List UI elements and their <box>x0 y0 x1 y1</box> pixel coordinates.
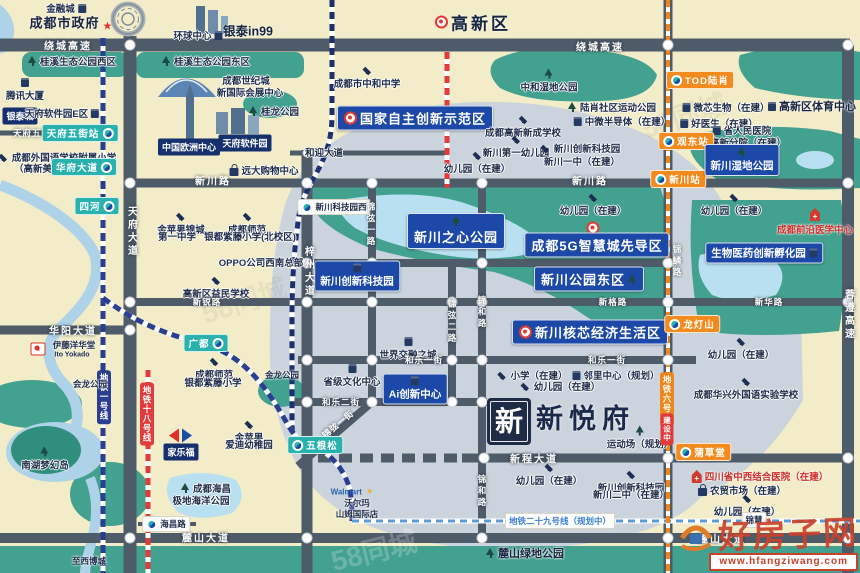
bld-icon <box>680 119 688 128</box>
school-icon <box>210 276 221 285</box>
label-text: 腾讯大厦 <box>6 88 44 102</box>
label-text: 高新区体育中心 <box>779 98 856 114</box>
map-label: 麓山绿地公园 <box>486 545 564 561</box>
metro-station-badge: 蒲草堂 <box>675 443 731 461</box>
map-label: 会龙公园 <box>73 378 107 390</box>
label-text: 四川省中西结合医院（在建） <box>705 469 829 483</box>
star-icon <box>103 16 115 28</box>
label-text: 山姆国际店 <box>336 508 379 520</box>
carrefour-icon <box>169 429 193 444</box>
label-text: 华府大道 <box>56 160 98 174</box>
map-label: 幼儿园（在建） <box>708 337 775 361</box>
school-icon <box>520 382 531 391</box>
label-text: 新川创新科技园 <box>320 274 394 289</box>
label-text: 锦弦一路 <box>365 202 377 248</box>
label-text: 天府软件园E区 <box>25 106 88 120</box>
map-label: 银泰in99 <box>223 21 273 40</box>
label-text: 桂溪生态公园西区 <box>40 54 116 68</box>
label-text: 天府大道 <box>124 206 139 258</box>
label-text: 家乐福 <box>167 446 194 459</box>
label-text: 和乐二街 <box>322 396 360 408</box>
school-icon <box>510 135 521 144</box>
label-text: 地铁二十九号线（规划中） <box>509 515 611 527</box>
metro-line-label: 地铁二十九号线（规划中） <box>505 513 615 529</box>
label-text: OPPO公司西南总部 <box>219 255 303 269</box>
label-text: 远大购物中心 <box>241 163 298 177</box>
map-label: 新川一中（在建） <box>544 154 620 168</box>
tree-icon <box>181 483 190 493</box>
label-text: 绕城高速 <box>44 38 92 53</box>
label-text: 海昌路 <box>160 518 186 530</box>
label-text: 新格路 <box>599 296 628 308</box>
label-text: 天府软件园 <box>222 137 267 150</box>
school-icon <box>540 144 551 153</box>
label-text: 幼儿园（在建） <box>708 347 775 361</box>
site-watermark-text: 好房子网 <box>717 515 858 553</box>
label-text: 锦和路 <box>476 296 488 331</box>
metro-logo-icon <box>663 136 674 147</box>
metro-logo-icon <box>292 440 303 451</box>
metro-station-badge: 龙灯山 <box>664 315 720 333</box>
map-label: 四川省中西结合医院（在建） <box>692 469 829 483</box>
label-text: 国家自主创新示范区 <box>360 109 486 128</box>
label-text: 中微半导体（在建） <box>585 114 671 128</box>
city-government-label: 成都市政府 <box>29 13 114 32</box>
map-label: 高新区体育中心 <box>768 98 856 114</box>
label-text: 省级文化中心 <box>323 374 380 388</box>
map-label: 远大购物中心 <box>229 163 298 177</box>
school-icon <box>741 494 752 503</box>
label-text: TOD陆肖 <box>685 73 729 87</box>
label-text: 蒲草堂 <box>694 445 726 459</box>
park-badge: 新川湿地公园 <box>705 144 780 176</box>
map-label <box>31 343 46 356</box>
label-text: 幼儿园（在建） <box>560 203 627 217</box>
school-icon <box>208 357 219 366</box>
tree-icon <box>738 147 747 157</box>
metro-logo-icon <box>680 447 691 458</box>
map-label: 极地海洋公园 <box>172 493 229 507</box>
label-text: 环球中心 <box>173 28 211 42</box>
tree-icon <box>28 56 37 66</box>
map-label: 银都紫藤小学(北校区) <box>204 229 296 243</box>
label-text: 天府五街站 <box>47 126 100 140</box>
label-text: Ai创新中心 <box>389 387 442 402</box>
map-label: 中国欧洲中心 <box>158 139 220 156</box>
label-text: 新川核芯经济生活区 <box>535 323 661 342</box>
site-watermark-house-icon <box>676 516 716 552</box>
school-icon <box>0 153 9 162</box>
map-label: 中微半导体（在建） <box>574 114 671 128</box>
road-label: 新川路 <box>572 173 608 188</box>
map-label: 幼儿园（在建） <box>520 379 601 393</box>
label-text: 成都市政府 <box>29 13 99 32</box>
label-text: 伊藤洋华堂 <box>53 339 96 351</box>
map-label: 南湖梦幻岛 <box>21 447 69 472</box>
school-icon <box>728 193 739 202</box>
school-icon <box>740 377 751 386</box>
metro-station-badge: 广都 <box>183 334 228 352</box>
label-text: 中国欧洲中心 <box>162 141 216 154</box>
project-logo: 新 <box>487 398 531 445</box>
road-label: 和乐二街 <box>322 396 360 408</box>
label-text: 新川一中（在建） <box>544 154 620 168</box>
metro-station-badge: 四河 <box>74 197 119 215</box>
bld-icon <box>713 126 721 135</box>
map-label: 中和湿地公园 <box>520 69 577 94</box>
label-text: 新锐路 <box>193 296 222 308</box>
school-icon <box>587 193 598 202</box>
road-label: 华阳大道 <box>49 323 97 338</box>
label-text: 锦鳞路 <box>671 245 683 280</box>
park-badge: 新川公园东区 <box>534 267 644 292</box>
map-label: 天府软件园 <box>218 135 271 152</box>
bld-icon <box>574 117 582 126</box>
map-label: 和迎大道 <box>305 145 343 159</box>
label-text: 新川湿地公园 <box>711 158 774 173</box>
zone-badge: 新川创新科技园 <box>314 261 400 292</box>
label-text: 新华路 <box>755 296 784 308</box>
bld-icon <box>768 102 776 111</box>
tree-icon <box>544 69 553 79</box>
tree-icon <box>635 426 644 436</box>
zone-badge: 生物医药创新孵化园 <box>705 243 823 264</box>
zone-badge: 新川核芯经济生活区 <box>512 320 668 345</box>
label-text: 华阳大道 <box>49 323 97 338</box>
label-text: 新川路 <box>572 173 608 188</box>
school-icon <box>496 371 507 380</box>
road-label: 蓉遵高速 <box>841 289 856 341</box>
metro-logo-icon <box>301 202 312 213</box>
map-label: 微芯生物（在建） <box>682 100 769 114</box>
school-icon <box>243 420 254 429</box>
map-label: 伊藤洋华堂 <box>53 339 96 351</box>
map-label: 成都市中和中学 <box>334 66 401 90</box>
road-label: 绕城高速 <box>576 39 624 54</box>
label-text: 龙灯山 <box>683 317 715 331</box>
label-text: 幼儿园（在建） <box>444 161 511 175</box>
road-label: 新格路 <box>599 296 628 308</box>
district-title: 高新区 <box>435 10 511 35</box>
road-label: 天府大道 <box>124 206 139 258</box>
map-label: 爱迪幼稚园 <box>225 437 273 451</box>
label-text: 成都华兴外国语实验学校 <box>694 387 799 401</box>
bld-icon <box>353 264 361 273</box>
label-text: 银都紫藤小学(北校区) <box>204 229 296 243</box>
metro-station-badge: 华府大道 <box>51 158 117 176</box>
label-text: 陆肖社区运动公园 <box>580 100 656 114</box>
map-label: 幼儿园（在建） <box>560 193 627 217</box>
label-text: 成都前沿医学中心 <box>777 222 853 236</box>
label-text: 极地海洋公园 <box>172 493 229 507</box>
project-name: 新悦府 <box>536 405 635 435</box>
bld-icon <box>411 377 419 386</box>
school-icon <box>543 463 554 472</box>
label-text: 新国际会展中心 <box>217 85 284 99</box>
road-label: 锦和路 <box>476 296 488 331</box>
target-icon <box>435 16 448 29</box>
metro-logo-icon <box>655 174 666 185</box>
school-icon <box>471 151 482 160</box>
interchange-icon <box>113 4 143 34</box>
label-text: 锦弦二路 <box>446 299 458 345</box>
tree-icon <box>628 274 637 284</box>
bld-icon <box>78 4 86 13</box>
label-text: 梓州大道 <box>301 246 316 298</box>
label-text: 锦和路 <box>476 475 488 510</box>
school-icon <box>517 115 528 124</box>
metro-station-badge: 天府五街站 <box>42 124 119 142</box>
target-icon <box>344 112 357 125</box>
label-text: 银都紫藤小学 <box>184 375 241 389</box>
tree-icon <box>162 56 171 66</box>
label-text: 四河 <box>79 199 100 213</box>
tree-icon <box>486 548 495 558</box>
label-text: 五根松 <box>306 438 338 452</box>
bld-icon <box>404 337 412 346</box>
map-label: 金龙公园 <box>265 369 299 381</box>
bld-icon <box>215 31 223 40</box>
label-text: 新川二中（在建） <box>593 487 669 501</box>
metro-station-badge: 新川科技园西 <box>297 199 370 215</box>
road-label: 和乐一街 <box>588 354 626 366</box>
road-label: 新华路 <box>755 296 784 308</box>
road-label: 锦弦一路 <box>365 202 377 248</box>
label-text: 桂龙公园 <box>261 104 299 118</box>
school-icon <box>175 212 186 221</box>
label-text: 南湖梦幻岛 <box>21 458 69 472</box>
label-text: 中和湿地公园 <box>520 80 577 94</box>
label-text: Ito Yokado <box>54 352 89 359</box>
road-label: 新锐路 <box>193 296 222 308</box>
label-text: 和乐一街 <box>405 354 443 366</box>
park-badge: 新川之心公园 <box>407 213 505 249</box>
road-label: 绕城高速 <box>44 38 92 53</box>
metro-station-badge: 新川站 <box>650 170 706 188</box>
metro-logo-icon <box>669 319 680 330</box>
school-icon <box>361 66 372 75</box>
label-text: 麓山绿地公园 <box>498 545 564 561</box>
label-text: 成都5G智慧城先导区 <box>531 236 662 255</box>
road-label: 梓州大道 <box>301 246 316 298</box>
project-emblem: 新 <box>495 408 523 436</box>
label-text: 幼儿园（在建） <box>701 203 768 217</box>
label-text: 新川之心公园 <box>414 227 498 246</box>
label-text: 爱迪幼稚园 <box>225 437 273 451</box>
map-label: 成都前沿医学中心 <box>777 208 853 236</box>
carrefour-label: 家乐福 <box>163 444 198 461</box>
bld-icon <box>21 78 29 87</box>
label-text: 新川路 <box>195 173 231 188</box>
label-text: 会龙公园 <box>73 378 107 390</box>
map-label: 天府软件园E区 <box>25 106 99 120</box>
location-map: 新 新悦府 金融城成都市政府环球中心银泰in99绕城高速绕城高速桂溪生态公园西区… <box>0 0 860 573</box>
label-text: 新川站 <box>669 172 701 186</box>
metro-line-label: 地铁十八号线 <box>140 383 154 446</box>
hosp-icon <box>810 213 820 221</box>
label-text: 地铁十八号线 <box>141 386 153 443</box>
map-label <box>169 429 193 444</box>
bld-icon <box>91 109 99 118</box>
label-text: 桂溪生态公园东区 <box>174 54 250 68</box>
label-text: 幼儿园（在建） <box>516 473 583 487</box>
map-label: 陆肖社区运动公园 <box>568 100 656 114</box>
tree-icon <box>40 447 49 457</box>
metro-logo-icon <box>102 128 113 139</box>
map-label: 新川创新科技园 <box>540 141 621 155</box>
metro-logo-icon <box>671 75 682 86</box>
walmart-logo: Walmart <box>331 487 374 498</box>
label-text: 和乐一街 <box>588 354 626 366</box>
map-label: 幼儿园（在建） <box>516 463 583 487</box>
label-text: 高新区 <box>451 10 511 35</box>
label-text: 广都 <box>188 336 209 350</box>
metro-station-badge: TOD陆肖 <box>666 71 734 89</box>
tree-icon <box>249 106 258 116</box>
label-text: Walmart <box>331 488 362 497</box>
map-label: 新川二中（在建） <box>593 487 669 501</box>
school-icon <box>625 470 636 479</box>
road-label: 和乐一街 <box>405 354 443 366</box>
map-label: 新国际会展中心 <box>217 85 284 99</box>
label-text: 第一中学 <box>158 229 196 243</box>
tree-icon <box>451 216 460 226</box>
tree-icon <box>568 102 577 112</box>
shop-icon <box>698 488 707 496</box>
hosp-icon <box>692 475 702 483</box>
map-label: 桂溪生态公园东区 <box>162 54 250 68</box>
map-label: 幼儿园（在建） <box>701 193 768 217</box>
road-label: 锦鳞路 <box>671 245 683 280</box>
metro-station-badge: 五根松 <box>287 436 343 454</box>
zone-badge: Ai创新中心 <box>383 374 448 405</box>
label-text: 建设中 <box>662 416 673 442</box>
label-text: 新川公园东区 <box>541 270 625 289</box>
map-label: 银都紫藤小学 <box>184 375 241 389</box>
metro-logo-icon <box>101 162 112 173</box>
label-text: 成都市中和中学 <box>334 76 401 90</box>
map-label: 腾讯大厦 <box>6 78 44 102</box>
target-icon <box>519 326 532 339</box>
zone-badge: 成都5G智慧城先导区 <box>524 233 669 258</box>
map-label: 桂龙公园 <box>249 104 299 118</box>
label-text: 银泰in99 <box>223 21 273 40</box>
map-label: 环球中心 <box>173 28 222 42</box>
zone-badge: 国家自主创新示范区 <box>337 106 493 131</box>
map-label: 省级文化中心 <box>323 364 380 388</box>
map-label: 成都华兴外国语实验学校 <box>694 377 799 401</box>
bld-icon <box>682 103 690 112</box>
road-label: 新川路 <box>195 173 231 188</box>
road-label: 锦和路 <box>476 475 488 510</box>
label-text: 新川科技园西 <box>315 201 366 213</box>
map-label: 桂溪生态公园西区 <box>28 54 116 68</box>
ito-icon <box>31 343 46 356</box>
label-text: 金龙公园 <box>265 369 299 381</box>
metro-logo-icon <box>213 338 224 349</box>
map-label: Ito Yokado <box>54 352 89 359</box>
label-text: 绕城高速 <box>576 39 624 54</box>
map-label: 至西博城 <box>72 555 106 567</box>
map-label: 幼儿园（在建） <box>444 151 511 175</box>
bld-icon <box>348 364 356 373</box>
label-text: 幼儿园（在建） <box>534 379 601 393</box>
label-text: 和迎大道 <box>305 145 343 159</box>
metro-station-badge: 海昌路 <box>142 516 190 532</box>
label-text: 生物医药创新孵化园 <box>711 246 806 261</box>
map-label: 第一中学 <box>158 229 196 243</box>
school-icon <box>241 212 252 221</box>
metro-logo-icon <box>104 201 115 212</box>
school-icon <box>735 337 746 346</box>
bld-icon <box>809 249 817 258</box>
label-text: 至西博城 <box>72 555 106 567</box>
road-label: 锦弦二路 <box>446 299 458 345</box>
label-text: 新川创新科技园 <box>554 141 621 155</box>
metro-line-status: 建设中 <box>661 413 674 445</box>
map-label: OPPO公司西南总部 <box>219 255 303 269</box>
site-watermark: 好房子网 www.hfangziwang.com <box>676 516 858 571</box>
metro-logo-icon <box>146 519 157 530</box>
map-label: 山姆国际店 <box>336 508 379 520</box>
label-text: 蓉遵高速 <box>841 289 856 341</box>
label-text: 微芯生物（在建） <box>693 100 769 114</box>
